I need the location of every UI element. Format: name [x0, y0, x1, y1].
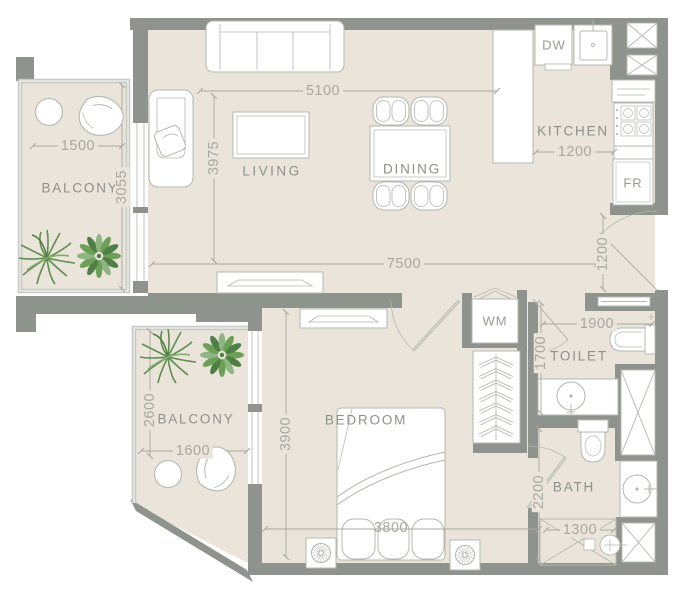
balcony-upper-label: BALCONY [41, 181, 118, 195]
balcony-lower-table [155, 461, 182, 488]
armchair [149, 90, 193, 187]
coffee-table [233, 112, 309, 158]
living-label: LIVING [242, 164, 301, 178]
toilet-label: TOILET [550, 349, 608, 363]
ceiling-fan-icon [450, 540, 480, 570]
dim-living-width: 5100 [303, 84, 343, 99]
balcony-upper-table [36, 99, 63, 126]
dim-living-depth: 3975 [207, 138, 222, 178]
floor-plan: LIVING DINING KITCHEN BEDROOM TOILET BAT… [0, 0, 690, 600]
wardrobe [473, 351, 520, 443]
dim-bedroom-width: 3800 [371, 521, 411, 536]
bed [337, 408, 445, 560]
sofa [206, 21, 344, 72]
console-bedroom [300, 309, 387, 328]
dim-balcony-lower-depth: 2600 [143, 390, 158, 430]
kitchen-sink [574, 20, 612, 65]
dim-balcony-lower-width: 1600 [173, 444, 213, 459]
balcony-lower-label: BALCONY [157, 412, 234, 426]
dim-bedroom-depth: 3900 [279, 414, 294, 454]
floor-plan-drawing [0, 0, 690, 600]
dim-toilet-width: 1900 [577, 317, 617, 332]
dim-toilet-depth: 1700 [534, 333, 549, 373]
fridge-label: FR [623, 177, 642, 190]
dim-kitchen-aisle: 1200 [555, 145, 595, 160]
dim-balcony-upper-depth: 3055 [115, 167, 130, 207]
toilet-vanity [538, 379, 618, 416]
dim-entry-door: 1200 [596, 234, 611, 274]
kitchen-label: KITCHEN [537, 124, 609, 138]
ceiling-fan-icon [306, 538, 336, 568]
bath-basin [620, 461, 657, 517]
dishwasher-label: DW [542, 39, 566, 52]
dining-label: DINING [383, 162, 441, 176]
washer-label: WM [482, 315, 507, 328]
dim-bath-depth: 2200 [532, 472, 547, 512]
dim-overall-width: 7500 [384, 257, 424, 272]
dim-shower-width: 1300 [560, 523, 600, 538]
kitchen-hood [612, 80, 655, 102]
kitchen-island [493, 30, 533, 163]
dim-balcony-upper-width: 1500 [58, 139, 98, 154]
bath-label: BATH [553, 480, 595, 494]
stove [614, 103, 653, 159]
bath-wc [578, 420, 608, 462]
bedroom-label: BEDROOM [325, 413, 407, 427]
tv-console-living [217, 272, 323, 293]
